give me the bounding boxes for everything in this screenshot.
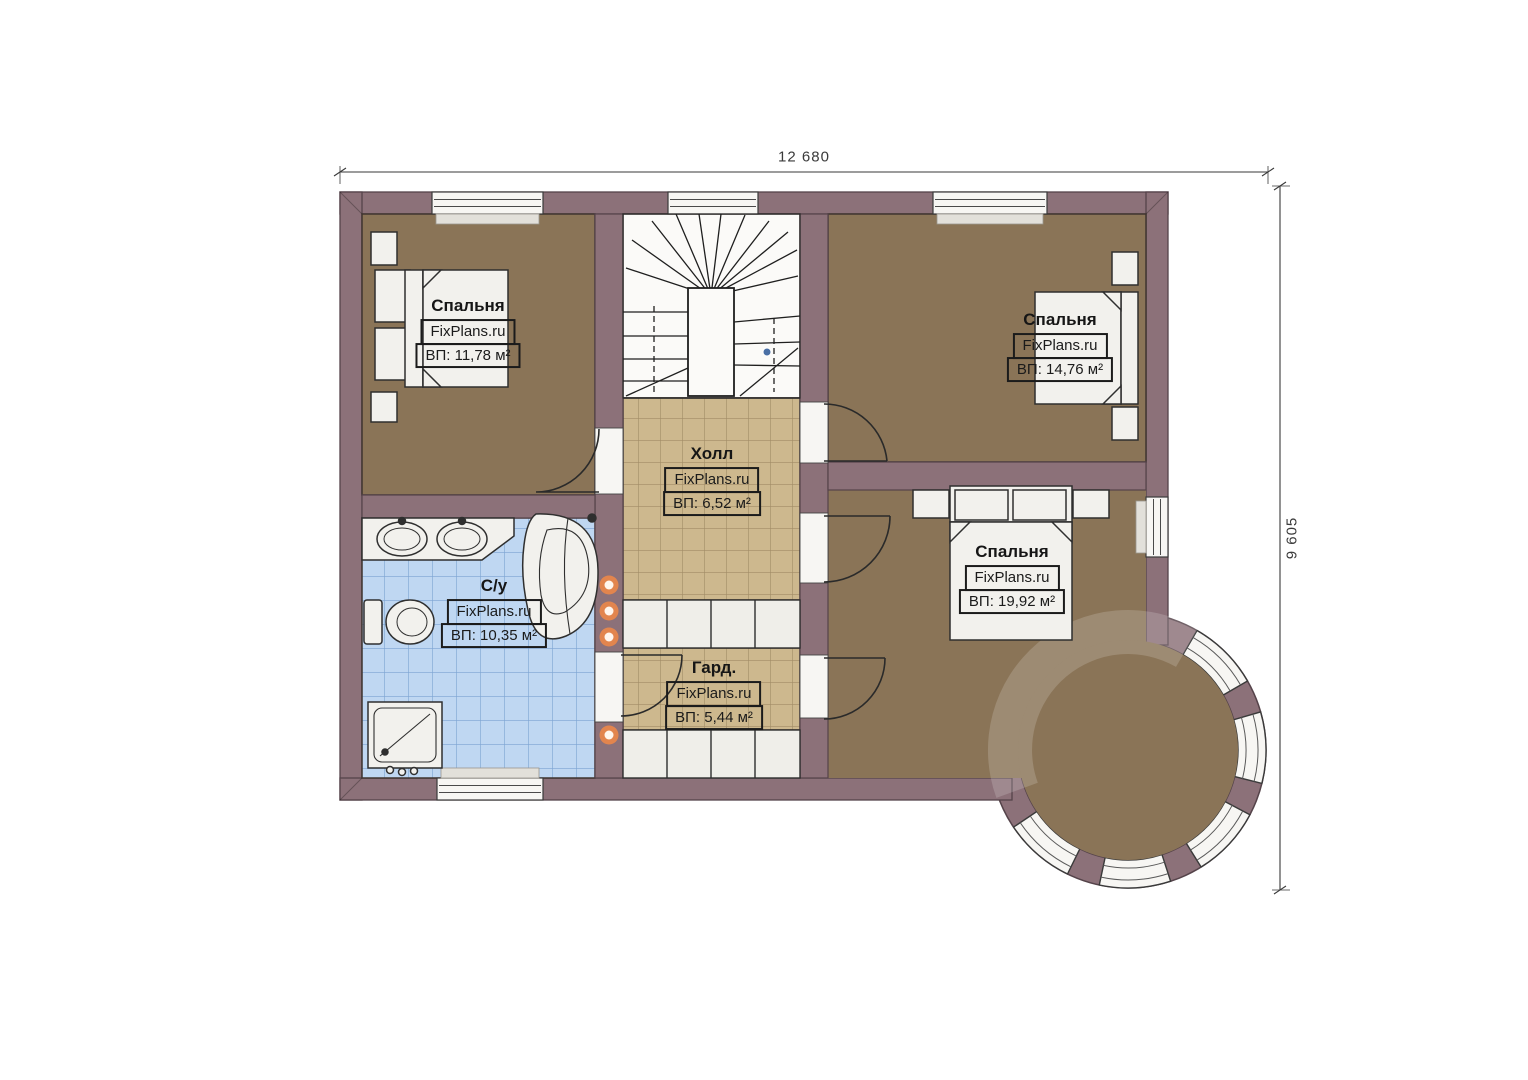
partition-bedroom1-bathroom xyxy=(362,495,595,518)
faucet xyxy=(459,518,466,525)
watermark-text: FixPlans.ru xyxy=(446,599,541,624)
stair-marker-dot xyxy=(763,348,771,356)
window-bedroom-1 xyxy=(432,192,543,214)
room-area-text: ВП: 11,78 м² xyxy=(415,343,520,368)
bed-headboard xyxy=(1121,292,1138,404)
nightstand xyxy=(1112,252,1138,285)
exterior-wall-left xyxy=(340,192,362,800)
window-sill xyxy=(436,214,539,224)
pillow xyxy=(955,490,1008,520)
watermark-text: FixPlans.ru xyxy=(964,565,1059,590)
wardrobe-cabinet xyxy=(371,232,397,265)
shower-drain xyxy=(382,749,388,755)
watermark-text: FixPlans.ru xyxy=(420,319,515,344)
watermark-text: FixPlans.ru xyxy=(1012,333,1107,358)
room-name: Спальня xyxy=(975,542,1048,562)
room-label-bedroom-3: Спальня FixPlans.ru ВП: 19,92 м² xyxy=(959,542,1065,614)
room-label-bedroom-2: Спальня FixPlans.ru ВП: 14,76 м² xyxy=(1007,310,1113,382)
nightstand xyxy=(1073,490,1109,518)
room-area-text: ВП: 5,44 м² xyxy=(665,705,763,730)
window-sill xyxy=(441,768,539,778)
stair-landing xyxy=(688,288,734,396)
room-area-text: ВП: 6,52 м² xyxy=(663,491,761,516)
dimension-height-label: 9 605 xyxy=(1284,517,1301,560)
window-stairwell xyxy=(668,192,758,214)
exterior-wall-right xyxy=(1146,192,1168,645)
door-jamb-bedroom-3b xyxy=(800,655,828,718)
pillow xyxy=(1013,490,1066,520)
window-bedroom-2 xyxy=(933,192,1047,214)
nightstand xyxy=(913,490,949,518)
faucet xyxy=(399,518,406,525)
room-label-hall: Холл FixPlans.ru ВП: 6,52 м² xyxy=(663,444,761,516)
watermark-text: FixPlans.ru xyxy=(666,681,761,706)
room-label-bathroom: С/у FixPlans.ru ВП: 10,35 м² xyxy=(441,576,547,648)
room-area-text: ВП: 19,92 м² xyxy=(959,589,1065,614)
floor-plan-canvas: 12 680 9 605 Спальня FixPlans.ru ВП: 11,… xyxy=(0,0,1528,1080)
door-jamb-wardrobe xyxy=(595,652,623,722)
window-bedroom-3 xyxy=(1146,497,1168,557)
room-name: Холл xyxy=(691,444,734,464)
room-label-bedroom-1: Спальня FixPlans.ru ВП: 11,78 м² xyxy=(415,296,520,368)
room-label-wardrobe: Гард. FixPlans.ru ВП: 5,44 м² xyxy=(665,658,763,730)
door-jamb-bedroom-3 xyxy=(800,513,828,583)
room-area-text: ВП: 14,76 м² xyxy=(1007,357,1113,382)
room-area-text: ВП: 10,35 м² xyxy=(441,623,547,648)
watermark-text: FixPlans.ru xyxy=(664,467,759,492)
nightstand xyxy=(1112,407,1138,440)
room-name: Гард. xyxy=(692,658,736,678)
window-sill xyxy=(937,214,1043,224)
wardrobe-cabinet xyxy=(371,392,397,422)
toilet-tank xyxy=(364,600,382,644)
dimension-width-label: 12 680 xyxy=(778,149,830,166)
room-name: Спальня xyxy=(431,296,504,316)
room-name: Спальня xyxy=(1023,310,1096,330)
window-bathroom xyxy=(437,778,543,800)
door-jamb-bedroom-2 xyxy=(800,402,828,463)
bath-faucet xyxy=(588,514,596,522)
room-name: С/у xyxy=(481,576,507,596)
window-sill xyxy=(1136,501,1146,553)
